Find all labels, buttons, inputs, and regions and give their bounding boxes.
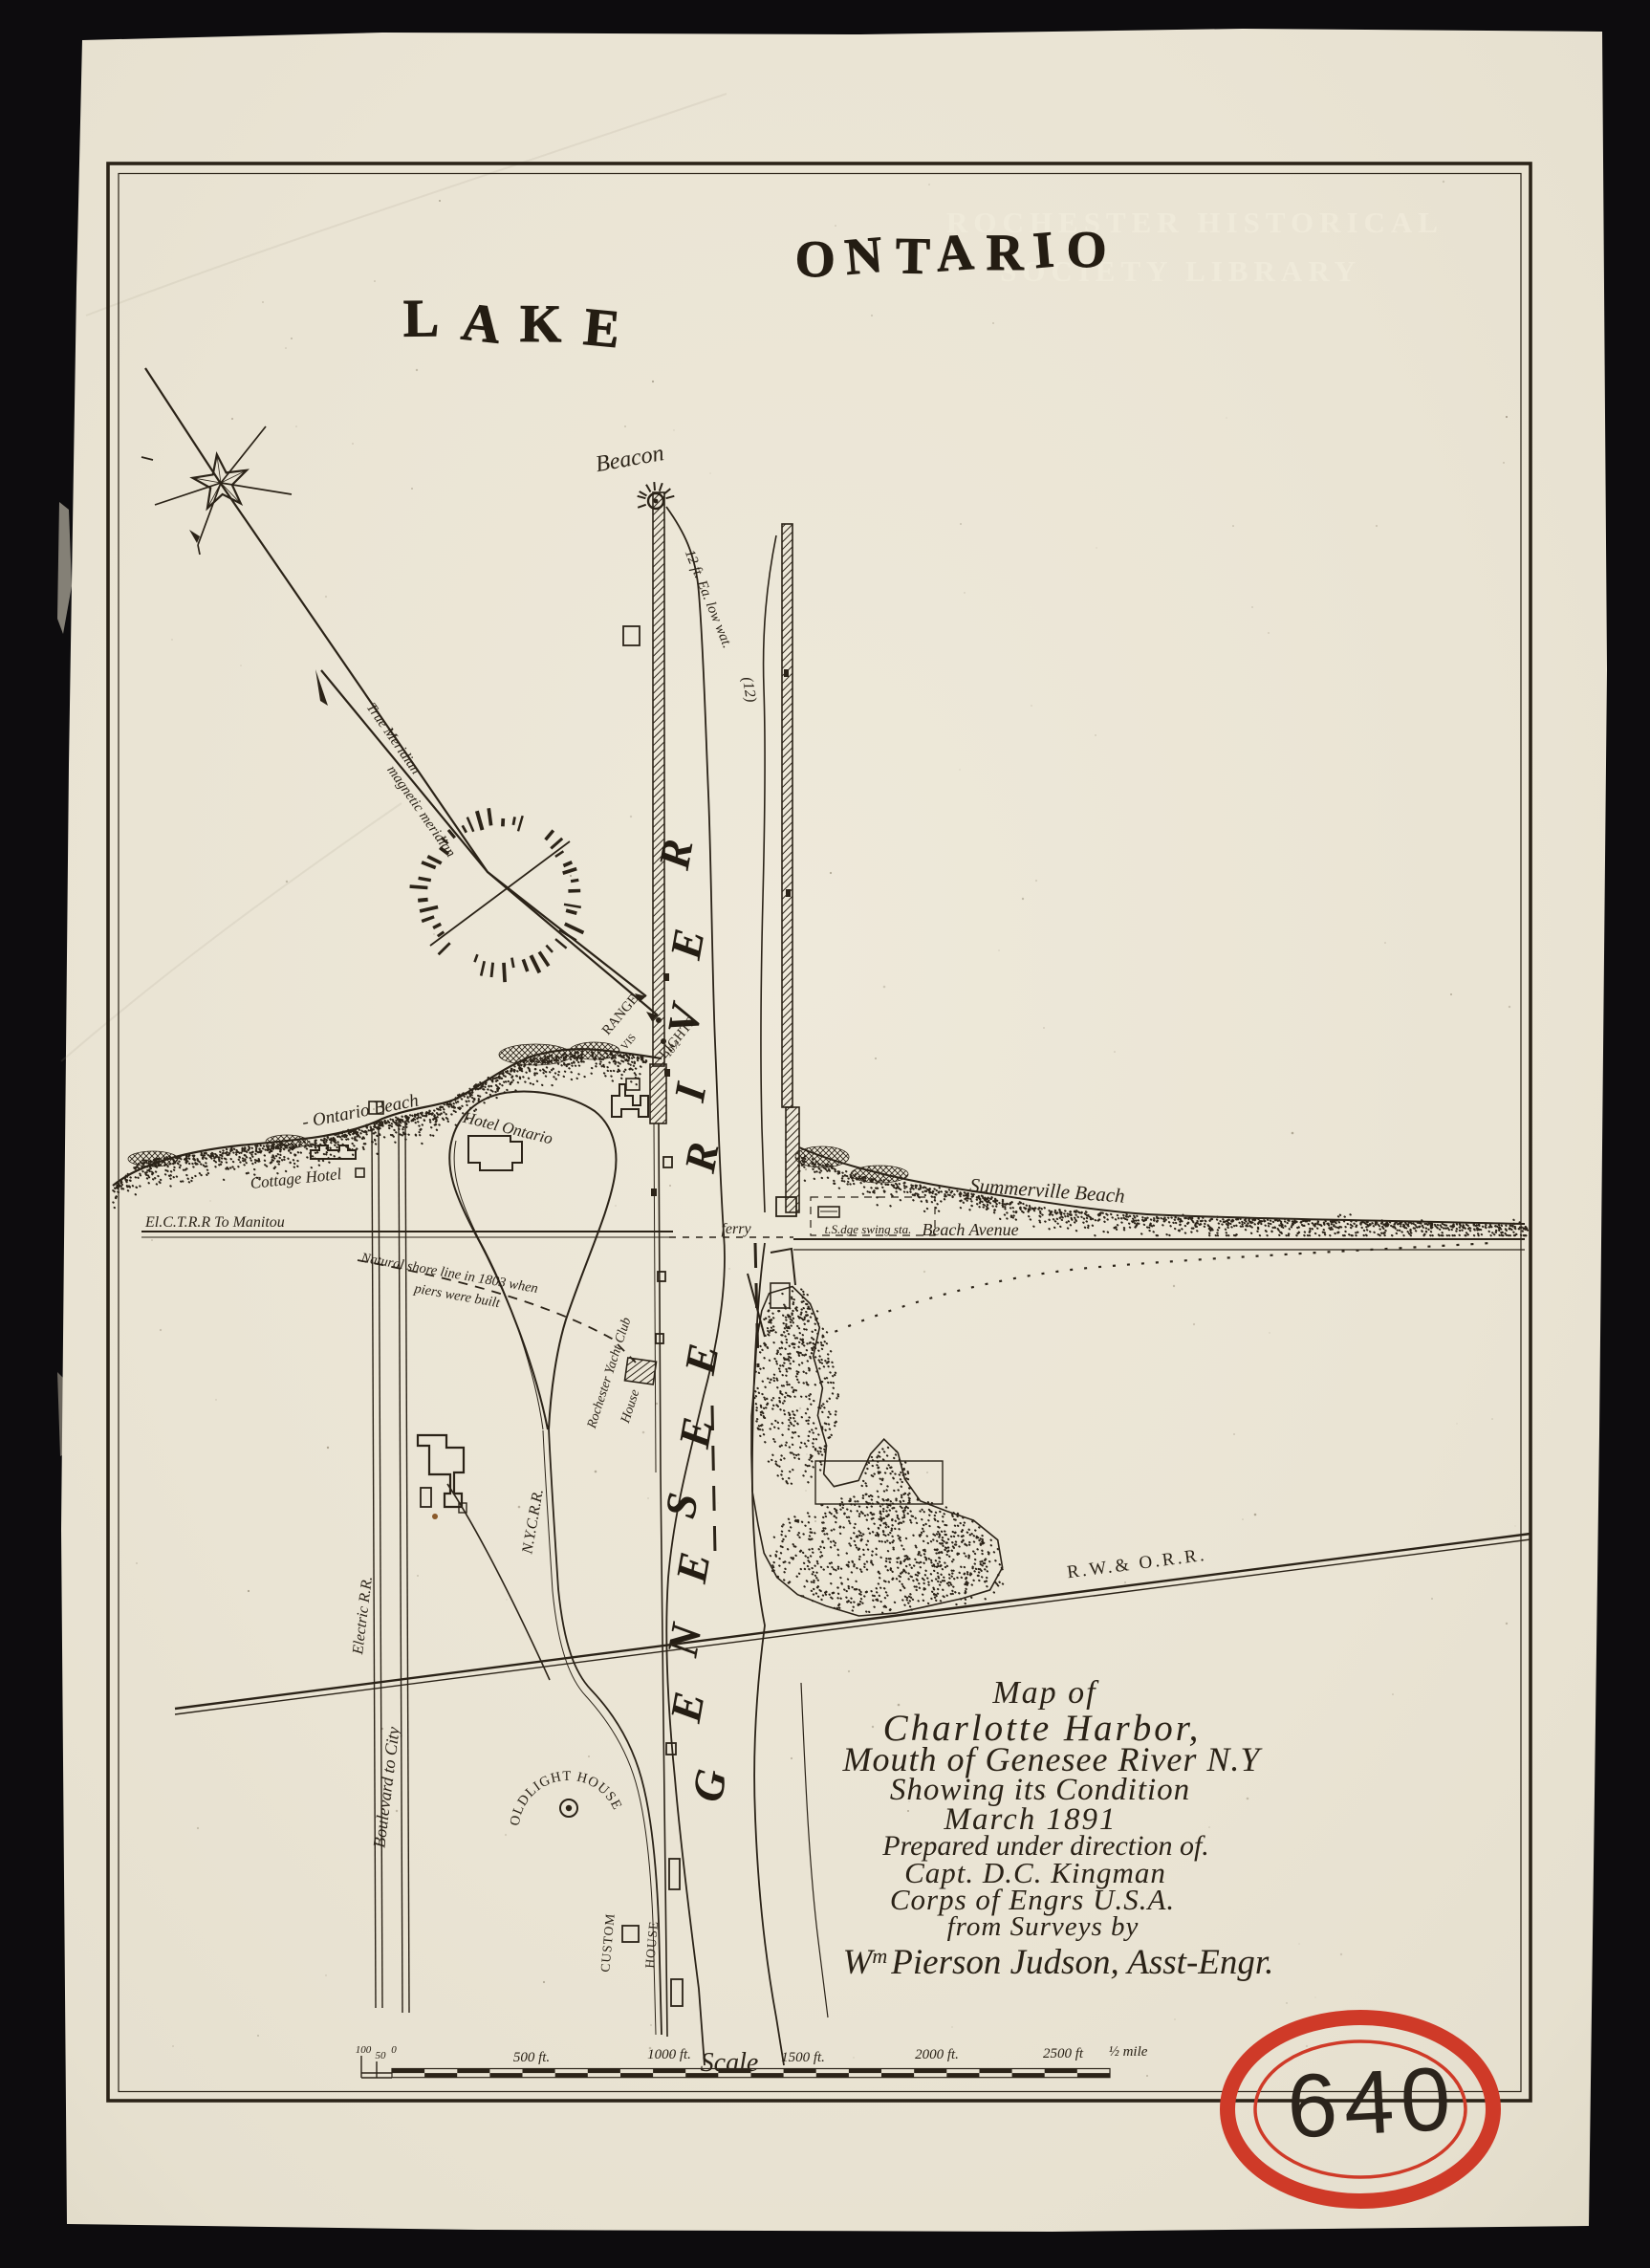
svg-text:2000 ft.: 2000 ft.	[915, 2047, 959, 2062]
svg-text:100: 100	[356, 2044, 372, 2056]
svg-text:500 ft.: 500 ft.	[513, 2050, 550, 2065]
svg-text:Map of: Map of	[991, 1675, 1099, 1711]
svg-text:0: 0	[391, 2044, 397, 2056]
svg-text:El.C.T.R.R To Manitou: El.C.T.R.R To Manitou	[144, 1214, 285, 1231]
svg-text:640: 640	[1285, 2047, 1460, 2156]
svg-text:50: 50	[376, 2050, 387, 2061]
svg-text:½ mile: ½ mile	[1109, 2044, 1148, 2060]
svg-text:WmPierson Judson, Asst-Engr.: WmPierson Judson, Asst-Engr.	[843, 1943, 1274, 1982]
svg-text:1500 ft.: 1500 ft.	[781, 2050, 825, 2065]
svg-text:Beach Avenue: Beach Avenue	[922, 1220, 1018, 1239]
svg-text:2500 ft: 2500 ft	[1043, 2046, 1084, 2061]
svg-text:from Surveys by: from Surveys by	[947, 1911, 1140, 1942]
svg-text:1000 ft.: 1000 ft.	[647, 2047, 691, 2062]
svg-text:ferry: ferry	[721, 1221, 751, 1237]
svg-text:t.S.dge swing sta.: t.S.dge swing sta.	[825, 1222, 912, 1236]
svg-text:Scale: Scale	[701, 2048, 759, 2078]
